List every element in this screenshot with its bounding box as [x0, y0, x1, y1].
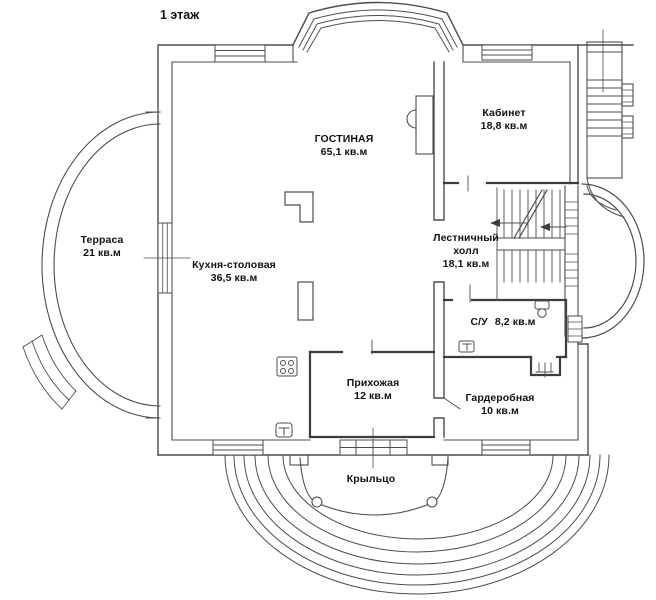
room-label-kuhnya: Кухня-столовая 36,5 кв.м	[174, 259, 294, 285]
window-top-left	[215, 45, 265, 62]
room-name: Терраса	[52, 234, 152, 247]
room-area: 36,5 кв.м	[174, 272, 294, 285]
terrace-steps	[23, 335, 76, 409]
window-right-lower	[568, 316, 582, 342]
room-name: Лестничный холл	[424, 232, 508, 258]
porch-column	[312, 497, 322, 507]
room-label-lestnichny-holl: Лестничный холл 18,1 кв.м	[424, 232, 508, 271]
room-area: 8,2 кв.м	[495, 316, 536, 328]
bay-window	[299, 10, 457, 52]
room-label-kabinet: Кабинет 18,8 кв.м	[454, 107, 554, 133]
window-bottom-right	[482, 440, 530, 455]
room-label-krylco: Крыльцо	[321, 473, 421, 486]
room-label-prihozhaya: Прихожая 12 кв.м	[323, 377, 423, 403]
terrace-structure	[23, 112, 160, 418]
floor-plan-drawing	[0, 0, 656, 600]
bath-sink-icon	[459, 341, 474, 352]
room-name: С/У	[470, 316, 487, 328]
room-area: 10 кв.м	[440, 405, 560, 418]
right-bay	[578, 184, 644, 338]
window-bottom-left	[213, 440, 263, 455]
floor-plan: 1 этаж ГОСТИНАЯ 65,1 кв.м Кабинет 18,8 к…	[0, 0, 656, 600]
wall-piers	[285, 192, 313, 320]
room-area: 21 кв.м	[52, 247, 152, 260]
entrance-door	[340, 428, 407, 468]
room-name: Гардеробная	[440, 392, 560, 405]
room-label-su: С/У 8,2 кв.м	[443, 316, 563, 329]
floor-title: 1 этаж	[160, 8, 199, 22]
room-area: 18,8 кв.м	[454, 120, 554, 133]
room-area: 12 кв.м	[323, 390, 423, 403]
porch-column	[427, 497, 437, 507]
room-name: ГОСТИНАЯ	[284, 133, 404, 146]
room-label-gostinaya: ГОСТИНАЯ 65,1 кв.м	[284, 133, 404, 159]
room-name: Крыльцо	[321, 473, 421, 486]
room-name: Кухня-столовая	[174, 259, 294, 272]
stove-icon	[277, 357, 297, 376]
window-top-right	[482, 45, 532, 60]
toilet-icon	[535, 301, 549, 317]
room-name: Прихожая	[323, 377, 423, 390]
room-label-garderobnaya: Гардеробная 10 кв.м	[440, 392, 560, 418]
fireplace	[407, 96, 433, 154]
room-label-terrasa: Терраса 21 кв.м	[52, 234, 152, 260]
room-area: 65,1 кв.м	[284, 146, 404, 159]
exterior-stair	[587, 30, 633, 217]
room-area: 18,1 кв.м	[424, 258, 508, 271]
kitchen-sink-icon	[276, 423, 292, 437]
room-name: Кабинет	[454, 107, 554, 120]
